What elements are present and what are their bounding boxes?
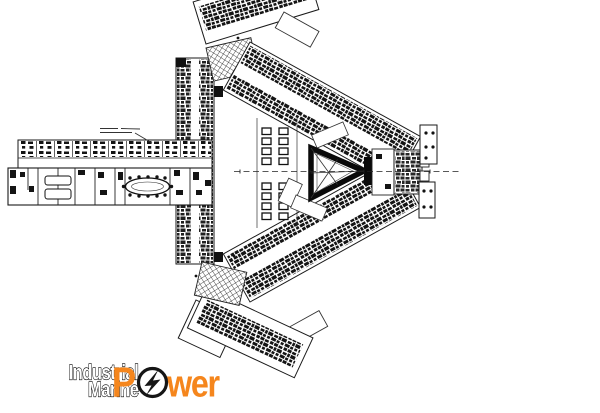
conference-table: [122, 175, 173, 197]
room-table: [45, 189, 71, 199]
west-wing: [8, 140, 212, 205]
furniture-grid-north: [257, 118, 297, 228]
canopy: [275, 12, 319, 47]
page: Industrial Marine P wer: [0, 0, 600, 413]
logo-text-power-rest: wer: [166, 363, 220, 405]
lightning-bolt-icon: [139, 369, 167, 397]
atrium-core: [364, 157, 372, 185]
room-table: [45, 176, 71, 185]
logo: Industrial Marine P wer: [69, 359, 221, 406]
logo-text-power-p: P: [112, 359, 136, 406]
floor-plan: Industrial Marine P wer: [0, 0, 600, 413]
